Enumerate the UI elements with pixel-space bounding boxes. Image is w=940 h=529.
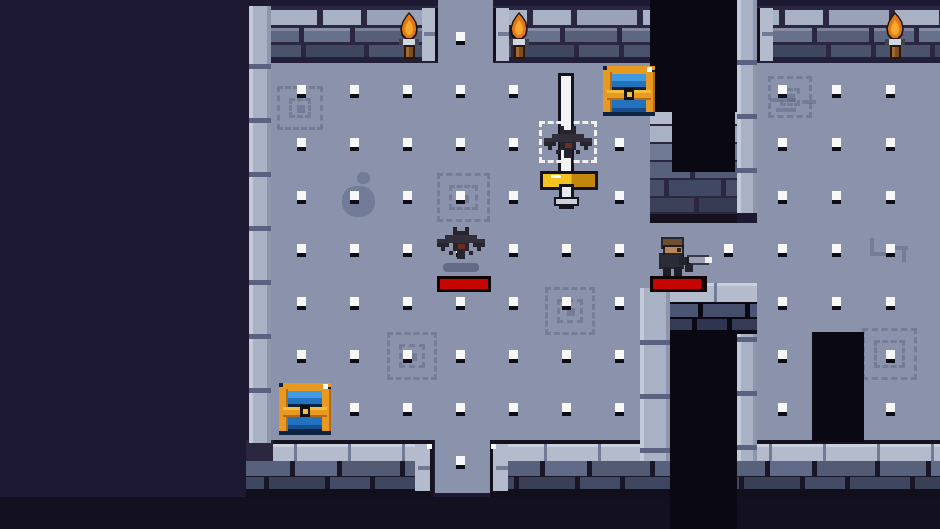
band-joint [931, 444, 934, 461]
wall-top-band [737, 444, 940, 461]
brick [246, 477, 264, 489]
brick [915, 477, 940, 489]
brick [580, 477, 620, 489]
brick [323, 10, 361, 25]
brick [744, 477, 800, 489]
floor-dot [403, 403, 412, 416]
floor-dot [886, 138, 895, 151]
cap-joint [762, 32, 773, 36]
chest-lid-light [612, 74, 646, 81]
brick [737, 461, 765, 476]
floor-dot [509, 350, 518, 363]
decal-dash [802, 100, 816, 104]
brick [768, 45, 826, 57]
brick [831, 45, 871, 57]
column-joint [737, 168, 757, 173]
bracket-end [901, 39, 905, 45]
player-eye [677, 248, 681, 252]
chest-glint [647, 67, 652, 72]
top-wall [757, 6, 940, 63]
bracket-end [525, 39, 529, 45]
bat-chest [458, 244, 465, 249]
floor-dot [886, 350, 895, 363]
floor-dot [886, 191, 895, 204]
brick [624, 45, 653, 57]
player-hair [663, 239, 682, 247]
wall-end-cap [422, 8, 438, 61]
bat-pixel [552, 142, 556, 146]
floor-dot [350, 138, 359, 151]
floor-dot [456, 138, 465, 151]
sword-pommel [556, 199, 577, 204]
brick [545, 461, 587, 476]
band-joint [769, 444, 772, 461]
bat-pixel [584, 146, 588, 150]
floor-dot [615, 191, 624, 204]
floor-dot [456, 297, 465, 310]
cap-glint [491, 444, 496, 449]
bat-pixel [445, 243, 449, 247]
floor-dot [350, 191, 359, 204]
chest-glint [323, 384, 328, 389]
floor-dot [403, 191, 412, 204]
brick [697, 319, 727, 330]
brick [669, 180, 721, 196]
band-joint [877, 444, 880, 461]
bracket-end [415, 39, 419, 45]
column-joint [737, 337, 757, 342]
player-leg [674, 267, 682, 276]
brick [330, 477, 370, 489]
brick [699, 198, 737, 212]
floor-dot [509, 244, 518, 257]
floor-dot [350, 244, 359, 257]
brick [670, 304, 698, 317]
chest-corner [279, 383, 283, 387]
floor-dot [350, 350, 359, 363]
bat-pixel [556, 150, 560, 154]
bat-shadow [443, 263, 479, 272]
floor-tiles [438, 0, 493, 63]
passage-left-column [640, 288, 670, 461]
bat-pixel [576, 150, 580, 154]
torch-handle [890, 45, 901, 59]
player-character[interactable] [655, 236, 713, 278]
decal-crack [902, 250, 906, 262]
handle-highlight [516, 47, 519, 57]
floor-dot [509, 403, 518, 416]
column-joint [640, 394, 670, 399]
brick [342, 461, 400, 476]
brick [850, 477, 910, 489]
wall-fade [490, 489, 672, 497]
cap-joint [496, 466, 508, 470]
chest-front-dark [288, 425, 322, 429]
brick [269, 477, 325, 489]
floor-dot [886, 85, 895, 98]
wall-fade [737, 489, 940, 497]
floor-dot [297, 297, 306, 310]
floor-dot [832, 297, 841, 310]
bottom-wall [246, 440, 433, 497]
wall-end-cap [757, 8, 773, 61]
brick [625, 477, 672, 489]
column-joint [249, 64, 271, 69]
brick [670, 319, 692, 330]
floor-dot [778, 350, 787, 363]
floor-dot [562, 403, 571, 416]
brick [519, 477, 575, 489]
band-joint [294, 444, 297, 461]
brick [805, 477, 845, 489]
floor-dot [456, 350, 465, 363]
floor-dot [615, 403, 624, 416]
brick [750, 304, 757, 317]
wall-shadow [650, 214, 737, 223]
band-joint [402, 444, 405, 461]
handle-highlight [406, 47, 409, 57]
chest-front-dark [612, 108, 646, 112]
brick [829, 10, 889, 25]
floor-dot [509, 138, 518, 151]
column-joint [737, 60, 757, 65]
floor-dot [403, 85, 412, 98]
floor-dot [509, 297, 518, 310]
floor-dot [509, 85, 518, 98]
doorway-north[interactable] [650, 0, 737, 112]
floor-dot [350, 403, 359, 416]
doorway-alcove[interactable] [812, 332, 864, 442]
wall-shadow [757, 57, 940, 63]
floor-decal-spiral [545, 287, 595, 335]
bat-pixel [461, 255, 465, 259]
bat-health-bar [437, 276, 491, 292]
floor-dot [778, 138, 787, 151]
band-joint [823, 444, 826, 461]
chest-keyhole [303, 409, 308, 414]
player-health-bar [650, 276, 707, 292]
brick [265, 10, 317, 25]
brick [770, 461, 812, 476]
floor-dot [297, 191, 306, 204]
brick [246, 461, 290, 476]
brick [577, 10, 637, 25]
gun-muzzle [705, 257, 712, 263]
chest-corner [603, 66, 607, 70]
floor-dot [832, 85, 841, 98]
torch [507, 12, 531, 60]
floor-dot [456, 456, 465, 469]
floor-decal-core [297, 105, 305, 113]
floor-dot [562, 350, 571, 363]
torch [883, 12, 907, 60]
floor-dot [403, 350, 412, 363]
floor-dot [832, 244, 841, 257]
brick [579, 45, 619, 57]
floor-dot [456, 32, 465, 45]
bat-enemy[interactable] [437, 227, 485, 259]
floor-dot [778, 297, 787, 310]
bat-pixel [481, 243, 485, 247]
brick [737, 477, 739, 489]
band-joint [348, 444, 351, 461]
column-joint [249, 226, 271, 231]
bat-chest [565, 143, 572, 148]
floor-decal-blob [357, 172, 370, 184]
bat-pixel [449, 251, 453, 255]
bat-pixel [588, 142, 592, 146]
guard-glint [551, 175, 561, 178]
floor-dot [297, 85, 306, 98]
brick [650, 180, 664, 196]
floor-dot [562, 297, 571, 310]
sword-guard [543, 174, 595, 187]
floor-dot [456, 85, 465, 98]
chest-front [612, 100, 646, 108]
floor-dot [297, 138, 306, 151]
brick [650, 198, 694, 212]
void-bottom [0, 497, 940, 529]
brick [295, 461, 337, 476]
floor-dot [509, 191, 518, 204]
column-joint [249, 118, 271, 123]
floor-dot [403, 297, 412, 310]
floor-dot [615, 350, 624, 363]
column-joint [249, 388, 271, 393]
band-joint [544, 444, 547, 461]
brick [622, 28, 653, 42]
wall-top-band [246, 444, 433, 461]
floor-dot [615, 297, 624, 310]
brick [306, 45, 364, 57]
door-right-pillar [737, 0, 757, 213]
bracket-end [509, 39, 513, 45]
brick [565, 28, 617, 42]
bat-pixel [469, 251, 473, 255]
floor-dot [832, 191, 841, 204]
cap-joint [418, 466, 430, 470]
floor-dot [724, 244, 733, 257]
gun-grip [685, 264, 693, 272]
brick [817, 28, 869, 42]
floor-dot [886, 297, 895, 310]
brick [935, 45, 940, 57]
brick [592, 461, 650, 476]
decal-dash [770, 98, 796, 102]
doorway-north-inner [672, 112, 735, 172]
brick [880, 461, 926, 476]
band-joint [714, 283, 717, 302]
floor-dot [886, 244, 895, 257]
floor-dot [562, 244, 571, 257]
floor-dot [778, 85, 787, 98]
floor-dot [297, 244, 306, 257]
bat-pixel [548, 146, 552, 150]
floor-dot [350, 85, 359, 98]
column-joint [737, 391, 757, 396]
brick [732, 319, 757, 330]
brick [304, 28, 350, 42]
bat-enemy-spawning[interactable] [544, 126, 592, 158]
bracket-end [399, 39, 403, 45]
player-leg [663, 267, 671, 276]
floor-decal-dashes [770, 98, 818, 114]
wall-shadow-corner [246, 440, 273, 461]
floor-dot [297, 350, 306, 363]
brick [726, 180, 737, 196]
wall-fade [246, 489, 433, 497]
floor-dot [778, 191, 787, 204]
brick [703, 304, 745, 317]
floor-dot [403, 244, 412, 257]
wall-end-cap [490, 444, 508, 491]
column-joint [737, 445, 757, 450]
column-joint [640, 448, 670, 453]
band-joint [598, 444, 601, 461]
chest-bottom-left[interactable] [279, 383, 331, 435]
cap-joint [424, 32, 435, 36]
floor-dot [615, 244, 624, 257]
bracket-end [885, 39, 889, 45]
brick [533, 10, 571, 25]
floor-dot [350, 297, 359, 310]
column-joint [249, 172, 271, 177]
game-viewport[interactable] [0, 0, 940, 529]
decal-dash [776, 108, 796, 112]
floor-dot [456, 403, 465, 416]
floor-dot [832, 138, 841, 151]
column-joint [249, 334, 271, 339]
left-wall-column [249, 6, 271, 443]
floor-dot [778, 244, 787, 257]
wall-end-cap [415, 444, 433, 491]
chest-keyhole [627, 92, 632, 97]
column-joint [640, 340, 670, 345]
torch-handle [404, 45, 415, 59]
floor-dot [615, 138, 624, 151]
floor-dot [456, 191, 465, 204]
column-joint [737, 114, 757, 119]
torch-handle [514, 45, 525, 59]
floor-dot [886, 403, 895, 416]
cap-glint [427, 444, 432, 449]
bat-pixel [568, 154, 572, 158]
handle-highlight [892, 47, 895, 57]
bat-pixel [441, 247, 445, 251]
brick [931, 461, 940, 476]
chest-lid-light [288, 391, 322, 398]
passage-south[interactable] [670, 330, 737, 529]
column-joint [249, 280, 271, 285]
bottom-wall [737, 440, 940, 497]
brick [919, 28, 940, 42]
bat-pixel [477, 247, 481, 251]
chest-top-right[interactable] [603, 66, 655, 116]
chest-front [288, 417, 322, 425]
floor-decal-spiral [387, 332, 437, 380]
brick [785, 10, 823, 25]
health-fill [653, 279, 701, 289]
health-fill [440, 279, 488, 289]
torch [397, 12, 421, 60]
floor-dot [778, 403, 787, 416]
brick [817, 461, 875, 476]
floor-dot [403, 138, 412, 151]
